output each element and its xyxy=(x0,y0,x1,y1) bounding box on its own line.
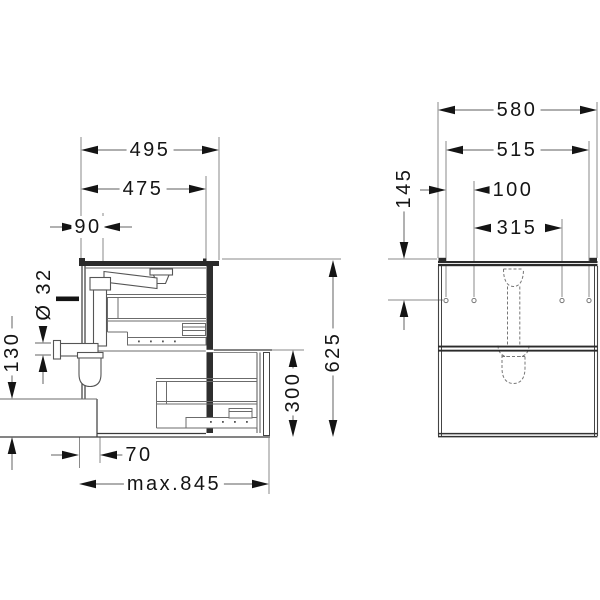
drawer-gap-line-bottom xyxy=(438,350,598,352)
drawer-gap-line-top xyxy=(438,346,598,348)
front-view-extension-lines xyxy=(388,102,597,300)
dim-label-max-845: max.845 xyxy=(124,473,224,495)
dim-label-625: 625 xyxy=(322,329,344,376)
dim-label-475: 475 xyxy=(120,178,167,200)
dim-label-pipe-diameter: Ø 32 xyxy=(33,264,55,323)
side-view-front-panel xyxy=(206,266,214,433)
technical-drawing-canvas: 495 475 90 Ø 32 130 625 300 70 max.845 5… xyxy=(0,0,600,600)
dim-label-145: 145 xyxy=(393,165,415,212)
dim-label-90: 90 xyxy=(71,216,104,238)
side-view-siphon-trap xyxy=(54,269,173,387)
front-view-cabinet-structure xyxy=(438,258,598,437)
side-view-upper-drawer xyxy=(107,295,206,346)
front-view-arrowheads xyxy=(400,106,597,317)
dim-label-100: 100 xyxy=(490,179,537,201)
dim-label-300: 300 xyxy=(282,369,304,416)
dim-label-580: 580 xyxy=(494,99,541,121)
front-view-dimension-lines xyxy=(404,110,580,330)
front-view-drain-template-dashed xyxy=(498,269,529,384)
front-view-mounting-holes xyxy=(444,298,591,302)
dim-label-70: 70 xyxy=(122,444,155,466)
side-view-countertop xyxy=(79,258,219,266)
dim-label-515: 515 xyxy=(494,139,541,161)
dim-label-315: 315 xyxy=(494,217,541,239)
dim-label-130: 130 xyxy=(1,329,23,376)
wall-drain-marker xyxy=(56,297,79,302)
dim-label-495: 495 xyxy=(127,139,174,161)
drawing-linework xyxy=(0,0,600,600)
